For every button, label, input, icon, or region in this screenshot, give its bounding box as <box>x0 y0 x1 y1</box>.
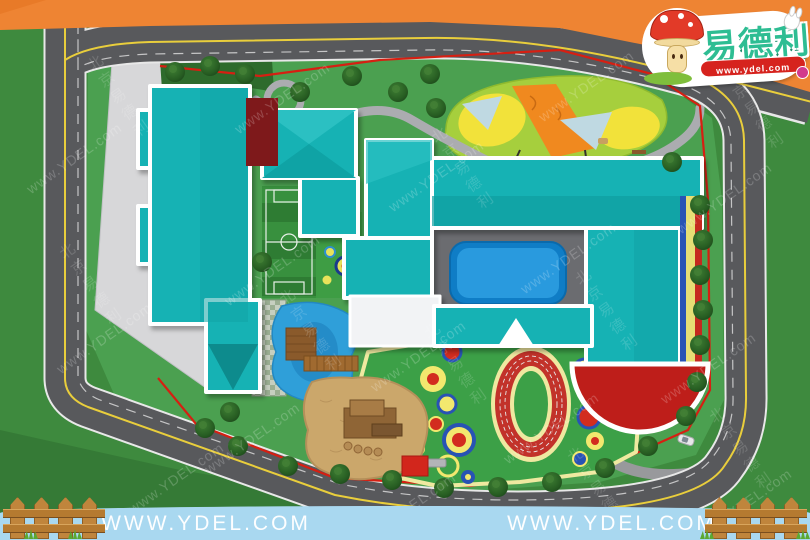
play-circle <box>452 433 466 447</box>
play-structure-roof <box>350 400 384 416</box>
roof-facet <box>432 196 702 226</box>
red-mat <box>402 456 428 476</box>
play-circle <box>573 452 587 466</box>
tree-icon <box>693 300 713 320</box>
log-step <box>374 448 382 456</box>
play-circle <box>427 373 439 385</box>
wooden-fence-icon <box>6 497 102 539</box>
play-circle <box>438 395 456 413</box>
tree-icon <box>542 472 562 492</box>
building-center-b <box>300 178 358 236</box>
log-step <box>354 445 362 453</box>
running-track <box>491 346 571 462</box>
play-circle <box>591 437 599 445</box>
tree-icon <box>290 82 310 102</box>
court-circle <box>325 247 335 257</box>
footer-url: WWW.YDEL.COM <box>492 512 732 536</box>
roof-facet <box>634 230 678 382</box>
tree-icon <box>382 470 402 490</box>
track-infield <box>514 371 548 437</box>
sandbox-area <box>304 377 428 479</box>
building-white-annex <box>350 296 440 346</box>
pool-water <box>457 248 559 298</box>
logo-grass <box>644 72 692 85</box>
tree-icon <box>426 98 446 118</box>
mushroom-eye <box>672 54 675 59</box>
roof-facet <box>200 88 248 322</box>
tree-icon <box>388 82 408 102</box>
tree-icon <box>690 335 710 355</box>
tree-icon <box>434 478 454 498</box>
mushroom-mascot-icon <box>648 10 706 76</box>
tree-icon <box>228 436 248 456</box>
play-circle <box>429 417 443 431</box>
strip-red <box>695 196 702 384</box>
logo-url-text: www.ydel.com <box>716 62 791 76</box>
heart-icon <box>796 66 809 79</box>
mini-track-strip <box>680 196 702 384</box>
tree-icon <box>220 402 240 422</box>
wooden-fence-icon <box>708 497 804 539</box>
footer-url: WWW.YDEL.COM <box>86 512 326 536</box>
tree-icon <box>278 456 298 476</box>
play-circle <box>465 474 471 480</box>
tree-icon <box>235 64 255 84</box>
tree-icon <box>690 195 710 215</box>
mushroom-spot <box>688 22 693 27</box>
footer-bar: WWW.YDEL.COM WWW.YDEL.COM <box>0 506 810 540</box>
fence-rail <box>3 509 105 518</box>
tree-icon <box>638 436 658 456</box>
tree-icon <box>165 62 185 82</box>
red-court <box>246 98 278 166</box>
tree-icon <box>420 64 440 84</box>
strip-yellow <box>686 196 695 384</box>
mushroom-spot <box>660 15 668 23</box>
site-plan-screenshot: www.YDEL.com www.YDEL.com www.YDEL.com w… <box>0 0 810 540</box>
fence-rail <box>705 509 807 518</box>
building-center-c <box>344 238 432 298</box>
tree-icon <box>693 230 713 250</box>
play-structure-deck <box>372 424 402 436</box>
tree-icon <box>595 458 615 478</box>
garden-animal <box>598 138 608 144</box>
strip-blue <box>680 196 686 384</box>
tree-icon <box>195 418 215 438</box>
tree-icon <box>676 406 696 426</box>
log-step <box>364 447 372 455</box>
tree-icon <box>200 56 220 76</box>
tree-icon <box>687 372 707 392</box>
log-step <box>344 442 352 450</box>
garden-bench <box>632 150 646 154</box>
tree-icon <box>252 252 272 272</box>
tree-icon <box>488 477 508 497</box>
tree-icon <box>690 265 710 285</box>
pool-courtyard <box>432 226 590 310</box>
mushroom-stem <box>667 45 687 73</box>
tree-icon <box>662 152 682 172</box>
mushroom-eye <box>680 54 683 59</box>
tree-icon <box>342 66 362 86</box>
tree-icon <box>330 464 350 484</box>
mushroom-spot <box>678 13 684 19</box>
fence-rail <box>705 524 807 533</box>
fence-rail <box>3 524 105 533</box>
court-circle <box>323 276 332 285</box>
brand-logo: 易德利 www.ydel.com <box>636 0 810 96</box>
